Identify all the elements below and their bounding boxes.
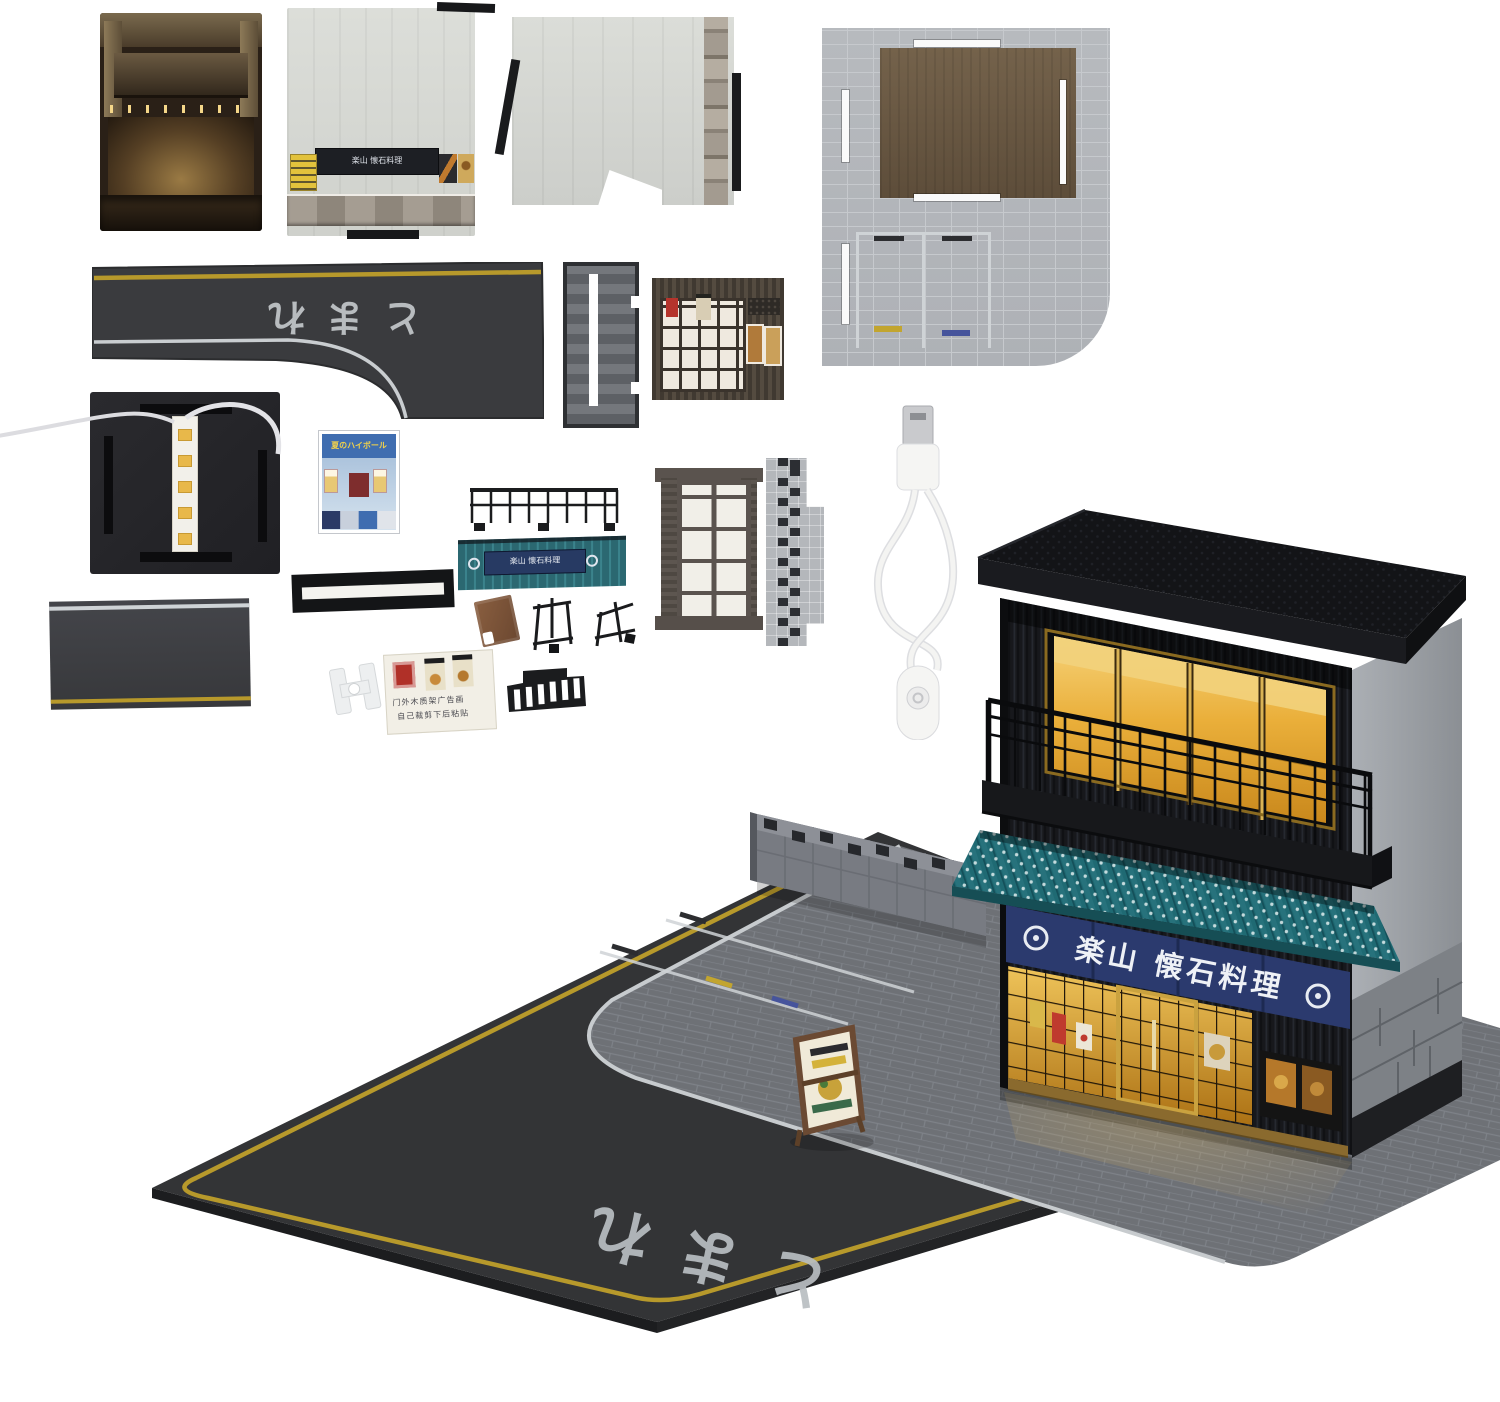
slot [842,244,849,324]
poster-center-panel [349,473,369,497]
slot [914,40,1000,47]
usb-plug-metal [903,406,933,446]
print-ceiling [100,13,262,47]
panel-poster-food [458,154,474,183]
usb-plug-body [897,444,939,490]
panel-stone-edge [704,17,728,205]
izakaya-building: 楽山 懐石料理 [952,510,1466,1216]
parking-tick-yellow [874,326,902,332]
parking-stall-lines [850,228,1010,350]
panel-shop-sign: 楽山 懐石料理 [315,148,439,175]
drink-glass [324,469,338,493]
slot [589,274,598,406]
print-floor [100,195,262,231]
print-stage-glow [108,117,254,195]
side-wall-panel [512,17,734,205]
panel-tab [437,2,495,13]
shopfront-facade-panel [652,278,784,400]
facade-poster-beige [696,294,711,320]
slot [914,194,1000,201]
slot [842,90,849,162]
parking-tick-blue [942,330,970,336]
assembled-diorama: とまれ [140,495,1500,1335]
panel-black-bar-right [732,73,741,191]
notch [631,296,639,308]
building-footprint-wood [880,48,1076,198]
panel-notch [598,170,662,206]
print-lights-row [110,105,252,113]
panel-black-bar-left [495,59,521,155]
interior-print-card [100,13,262,231]
road-marking-text-part: とまれ [205,291,465,349]
brick-ground-panel [822,28,1110,366]
poster-title: 夏のハイボール [322,434,396,458]
facade-photo-window [746,324,764,364]
storefront-wall-panel: 楽山 懐石料理 [287,8,475,236]
print-mezzanine [114,53,248,98]
facade-poster-red [666,298,678,317]
facade-vent-grille [748,298,780,315]
product-photo-canvas: 楽山 懐石料理 [0,0,1500,1402]
lattice-wall-strip [563,262,639,428]
panel-poster-dark [439,154,457,183]
panel-tab-bottom [347,230,419,239]
slot [1060,80,1066,184]
drink-glass [373,469,387,493]
panel-stone-base [287,194,475,226]
notch [631,382,639,394]
facade-photo-window [764,326,782,366]
panel-poster-yellow [290,154,317,191]
